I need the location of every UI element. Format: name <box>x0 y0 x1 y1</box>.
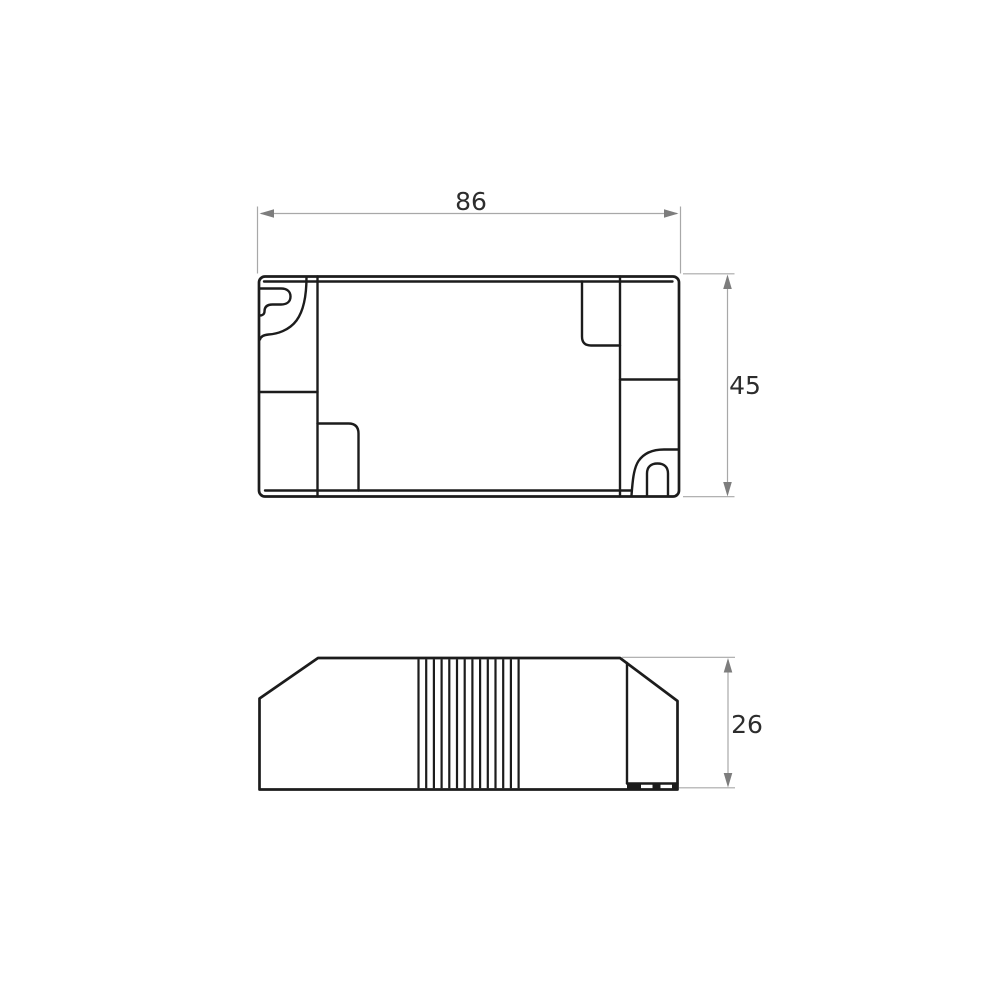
height-arrow-bottom-icon <box>723 482 732 497</box>
top-view-terminal-block <box>582 282 620 346</box>
dimension-height: 45 <box>683 274 761 497</box>
height-dimension-label: 45 <box>729 371 761 400</box>
top-view-cable-channel-top-left <box>260 277 307 340</box>
width-dimension-label: 86 <box>455 187 487 216</box>
side-view-outline <box>260 658 678 790</box>
depth-dimension-label: 26 <box>731 710 763 739</box>
depth-arrow-top-icon <box>724 658 733 673</box>
top-view-bottom-left-compartment <box>318 424 359 491</box>
drawing-canvas: 86 45 26 <box>0 0 1000 1000</box>
width-arrow-left-icon <box>260 209 275 218</box>
top-view <box>259 277 679 497</box>
side-view-ribs <box>419 659 519 788</box>
height-extension-lines <box>683 274 735 497</box>
side-view <box>260 658 678 790</box>
width-arrow-right-icon <box>664 209 679 218</box>
top-view-cable-channel-bottom-right <box>632 450 679 496</box>
depth-arrow-bottom-icon <box>724 773 733 788</box>
width-extension-lines <box>258 207 681 274</box>
top-view-outer-body <box>259 277 679 497</box>
top-view-cable-hook-top-left <box>260 289 291 316</box>
technical-drawing: 86 45 26 <box>0 0 1000 1000</box>
height-arrow-top-icon <box>723 275 732 290</box>
dimension-width: 86 <box>258 187 681 274</box>
top-view-cable-notch-bottom-right <box>647 464 668 496</box>
